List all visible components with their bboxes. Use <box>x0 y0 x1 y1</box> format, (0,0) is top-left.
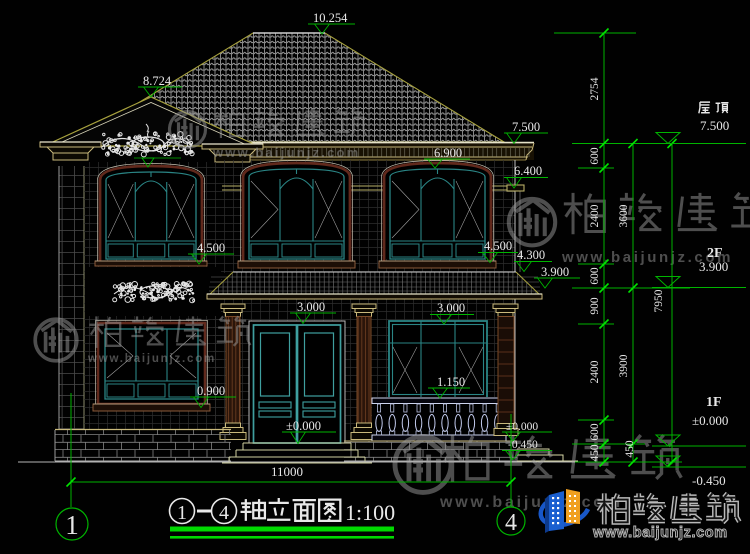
svg-text:3.000: 3.000 <box>437 301 465 315</box>
svg-text:7.500: 7.500 <box>512 120 540 134</box>
svg-text:7.500: 7.500 <box>700 118 729 133</box>
svg-text:4: 4 <box>219 502 229 524</box>
svg-text:3.000: 3.000 <box>297 300 325 314</box>
svg-text:10.254: 10.254 <box>313 11 348 25</box>
svg-text:7950: 7950 <box>653 289 665 312</box>
svg-text:450: 450 <box>624 440 636 458</box>
svg-text:4.300: 4.300 <box>517 248 545 262</box>
svg-text:0.900: 0.900 <box>197 384 225 398</box>
svg-text:www.baijunjz.com: www.baijunjz.com <box>212 145 360 160</box>
svg-text:600: 600 <box>589 147 601 165</box>
svg-text:-0.450: -0.450 <box>692 473 726 488</box>
svg-text:4.500: 4.500 <box>484 239 512 253</box>
svg-text:±0.000: ±0.000 <box>692 413 728 428</box>
svg-text:11000: 11000 <box>271 464 303 479</box>
svg-text:3.900: 3.900 <box>699 259 728 274</box>
svg-text:2400: 2400 <box>589 360 601 383</box>
svg-text:www.baijunjz.com: www.baijunjz.com <box>87 353 216 365</box>
svg-text:2400: 2400 <box>589 204 601 227</box>
svg-text:3900: 3900 <box>618 354 630 377</box>
svg-text:±0.000: ±0.000 <box>286 419 321 433</box>
svg-text:8.724: 8.724 <box>143 74 172 88</box>
svg-text:4: 4 <box>505 510 517 536</box>
svg-text:3600: 3600 <box>618 204 630 227</box>
svg-text:6.900: 6.900 <box>434 146 462 160</box>
svg-text:1: 1 <box>65 510 79 540</box>
svg-text:1:100: 1:100 <box>345 500 395 525</box>
svg-text:www.baijunjz.com: www.baijunjz.com <box>592 525 728 541</box>
svg-text:-0.450: -0.450 <box>508 439 538 451</box>
svg-text:1: 1 <box>177 502 187 524</box>
svg-text:1.150: 1.150 <box>437 375 465 389</box>
svg-text:600: 600 <box>589 267 601 285</box>
svg-text:4.500: 4.500 <box>197 241 225 255</box>
svg-text:900: 900 <box>589 297 601 315</box>
svg-text:3.900: 3.900 <box>541 265 569 279</box>
svg-text:6.400: 6.400 <box>514 164 542 178</box>
svg-text:600: 600 <box>589 423 601 441</box>
svg-text:1F: 1F <box>706 395 722 410</box>
svg-text:www.baijunjz.com: www.baijunjz.com <box>439 494 623 511</box>
svg-text:450: 450 <box>589 444 601 462</box>
svg-text:2754: 2754 <box>589 77 601 100</box>
